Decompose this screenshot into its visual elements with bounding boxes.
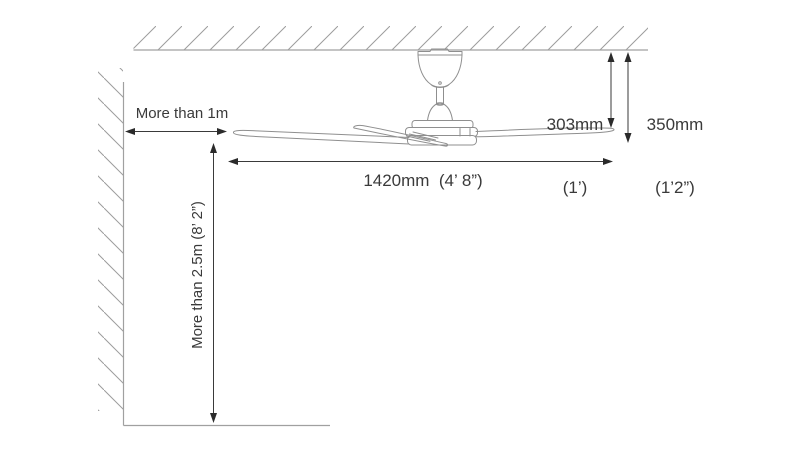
total-height-value: 350mm [627,114,723,135]
wall-clearance-label: More than 1m [112,105,252,123]
blade-span-label: 1420mm (4’ 8”) [343,170,503,191]
floor-clearance-label: More than 2.5m (8’ 2”) [190,190,206,360]
installation-clearance-diagram: More than 1m 1420mm (4’ 8”) 303mm (1’) 3… [0,0,801,451]
arrowhead-left-icon [228,158,238,165]
fan-blade-left-icon [233,130,409,144]
total-height-alt: (1’2”) [627,177,723,198]
drop-height-value: 303mm [527,114,623,135]
arrowhead-up-icon [608,52,615,62]
ceiling-hatch [134,26,649,50]
dimension-floor-clearance [210,143,217,423]
arrowhead-right-icon [217,128,227,135]
drop-height-alt: (1’) [527,177,623,198]
drop-height-label: 303mm (1’) [527,72,623,240]
arrowhead-up-icon [625,52,632,62]
arrowhead-up-icon [210,143,217,153]
arrowhead-left-icon [125,128,135,135]
dimension-wall-clearance [125,128,227,135]
fan-downrod-icon [437,87,444,104]
total-height-label: 350mm (1’2”) [627,72,723,240]
arrowhead-down-icon [210,413,217,423]
